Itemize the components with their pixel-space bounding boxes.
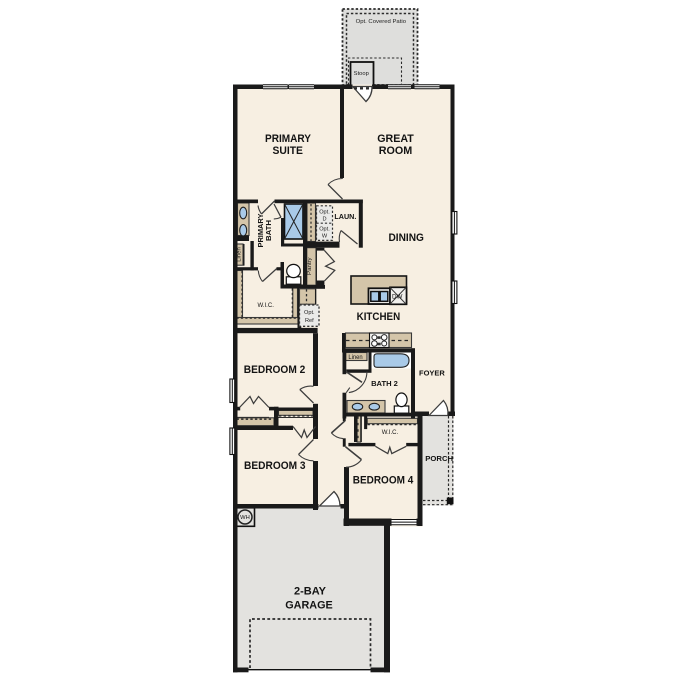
svg-text:BEDROOM 4: BEDROOM 4 xyxy=(353,475,414,487)
svg-text:KITCHEN: KITCHEN xyxy=(357,311,401,323)
svg-text:FOYER: FOYER xyxy=(419,369,446,378)
svg-text:D: D xyxy=(322,216,326,222)
svg-text:Opt.: Opt. xyxy=(319,227,330,233)
svg-text:Linen: Linen xyxy=(348,354,363,361)
svg-text:Pantry: Pantry xyxy=(307,257,313,275)
svg-text:Linen: Linen xyxy=(237,247,243,262)
svg-text:Opt.: Opt. xyxy=(304,310,315,316)
svg-text:W: W xyxy=(322,234,328,240)
svg-text:LAUN.: LAUN. xyxy=(334,212,356,221)
svg-text:PORCH: PORCH xyxy=(425,454,453,463)
svg-text:2-BAY: 2-BAY xyxy=(294,586,326,598)
svg-text:ROOM: ROOM xyxy=(379,145,413,157)
svg-text:Stoop: Stoop xyxy=(354,71,369,77)
svg-text:DW: DW xyxy=(392,294,403,300)
svg-text:Opt.: Opt. xyxy=(319,209,330,215)
svg-text:SUITE: SUITE xyxy=(272,145,303,157)
svg-text:GREAT: GREAT xyxy=(377,133,414,145)
svg-text:GARAGE: GARAGE xyxy=(285,599,333,611)
svg-text:Opt. Covered Patio: Opt. Covered Patio xyxy=(356,19,406,25)
svg-text:PRIMARY: PRIMARY xyxy=(265,133,311,145)
svg-text:W.I.C.: W.I.C. xyxy=(382,429,399,436)
svg-text:DINING: DINING xyxy=(388,232,424,244)
svg-text:BEDROOM 2: BEDROOM 2 xyxy=(244,364,306,376)
svg-text:W.I.C.: W.I.C. xyxy=(257,302,274,309)
svg-text:BEDROOM 3: BEDROOM 3 xyxy=(244,460,306,472)
svg-text:BATH: BATH xyxy=(264,220,273,241)
svg-text:WH: WH xyxy=(240,515,250,521)
svg-text:Ref: Ref xyxy=(305,318,314,324)
svg-text:BATH 2: BATH 2 xyxy=(371,379,398,388)
